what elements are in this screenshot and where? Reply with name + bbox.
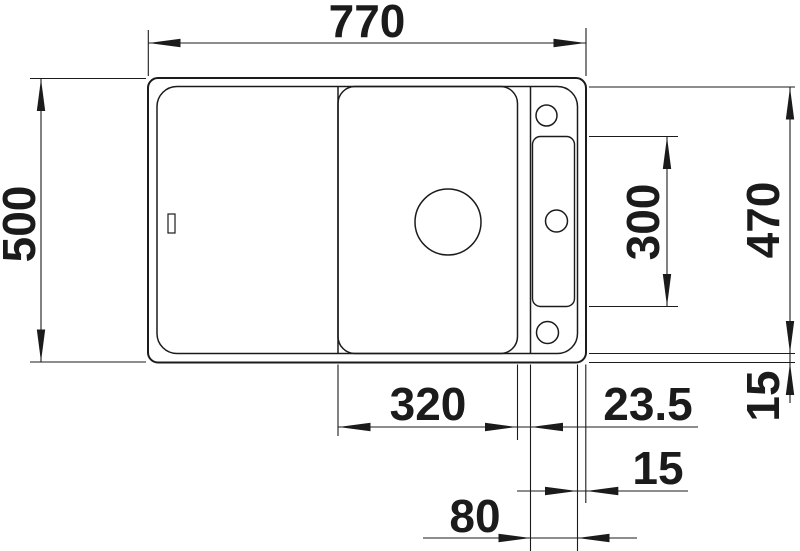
arrowhead-down: [786, 321, 794, 353]
arrowhead-up: [37, 79, 45, 111]
tap-hole-bottom: [537, 322, 559, 344]
sink-body: [148, 78, 586, 363]
dim-total-depth-500: 500: [0, 79, 146, 363]
technical-drawing-canvas: 770 500 470 15 300: [0, 0, 800, 551]
dim-label-300: 300: [617, 184, 669, 261]
dim-label-770: 770: [329, 0, 406, 47]
sink-outer-edge: [148, 78, 586, 363]
arrowhead-right: [485, 423, 517, 431]
dim-rail-length-300: 300: [589, 137, 678, 307]
sink-dimension-drawing: 770 500 470 15 300: [0, 0, 800, 551]
arrowhead-down: [37, 330, 45, 362]
dim-label-80: 80: [449, 490, 500, 542]
arrowhead-left-outside: [586, 487, 618, 495]
arrowhead-left-outside: [531, 423, 563, 431]
dim-label-15-horizontal: 15: [632, 442, 683, 494]
arrowhead-left: [339, 423, 371, 431]
arrowhead-up: [663, 137, 671, 169]
dim-label-23-5: 23.5: [603, 378, 693, 430]
dim-label-500: 500: [0, 186, 45, 263]
tap-hole-top: [536, 105, 557, 126]
bowl-outline: [338, 87, 518, 354]
tap-hole-middle: [546, 210, 568, 232]
arrowhead-right-outside: [545, 487, 577, 495]
dim-total-width-770: 770: [148, 0, 586, 76]
dim-label-15-vertical: 15: [737, 370, 789, 421]
drain-hole: [415, 189, 481, 255]
overflow-slot: [168, 214, 175, 233]
dim-rim-15-vertical: 15: [737, 354, 794, 422]
arrowhead-down: [663, 274, 671, 306]
arrowhead-up: [786, 88, 794, 120]
sink-inner-rim: [157, 87, 578, 354]
arrowhead-left: [149, 39, 181, 47]
arrowhead-left-outside: [578, 534, 610, 542]
dim-label-470: 470: [737, 182, 789, 259]
arrowhead-right-outside: [499, 534, 531, 542]
arrowhead-right: [554, 39, 586, 47]
dim-label-320: 320: [390, 378, 467, 430]
